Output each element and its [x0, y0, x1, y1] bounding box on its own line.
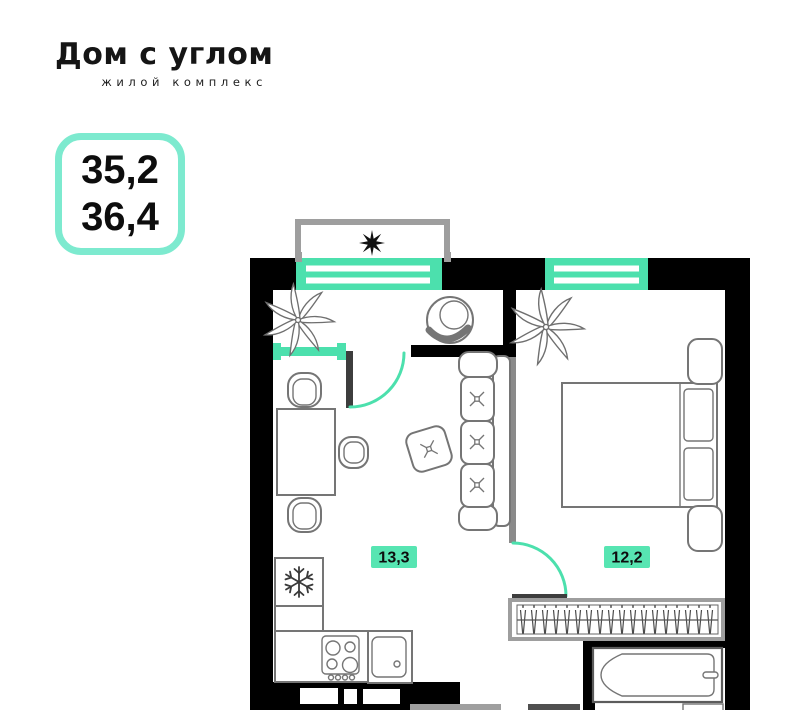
- chair-bottom: [288, 498, 321, 532]
- bed: [562, 383, 717, 507]
- balcony: [298, 222, 447, 261]
- armchair: [427, 297, 473, 343]
- window-bedroom: [545, 258, 648, 290]
- bathroom-fixture-cutoff: [683, 704, 723, 710]
- entry-wall-gray: [410, 704, 501, 710]
- page: Дом с углом жилой комплекс 35,2 36,4: [0, 0, 796, 710]
- wardrobe: [510, 600, 723, 639]
- pouf: [404, 424, 454, 474]
- burner: [326, 641, 340, 655]
- sofa: [459, 352, 510, 530]
- fridge: [275, 558, 323, 606]
- kitchen-sink: [368, 631, 412, 683]
- door-living: [346, 351, 404, 408]
- wall-vents: [300, 688, 400, 704]
- door-leaf: [346, 351, 353, 408]
- chair-right: [339, 437, 368, 468]
- room-label-bedroom: 12,2: [604, 546, 650, 568]
- room-label-kitchen-living: 13,3: [371, 546, 417, 568]
- wall-top-a: [250, 258, 296, 290]
- dining-table: [277, 409, 335, 495]
- bathtub-faucet: [703, 672, 718, 678]
- stove-knob: [350, 675, 355, 680]
- stove-knob: [329, 675, 334, 680]
- floor-plan: 13,3 12,2: [0, 0, 796, 710]
- wall-right: [725, 258, 750, 710]
- radiator: [273, 343, 346, 360]
- bathtub: [593, 648, 722, 702]
- room-area-text: 13,3: [378, 550, 409, 567]
- door-bedroom: [512, 543, 567, 601]
- door-swing-arc: [513, 543, 566, 596]
- kitchen-counter-small: [275, 606, 323, 631]
- room-area-text: 12,2: [611, 550, 642, 567]
- pillow: [684, 448, 713, 500]
- stove-knob: [336, 675, 341, 680]
- sink-drain: [394, 661, 400, 667]
- chair-top: [288, 373, 321, 407]
- nightstand-top: [688, 339, 722, 384]
- wall-left: [250, 258, 273, 710]
- stove: [322, 636, 359, 680]
- wall-top-c: [648, 258, 727, 290]
- balcony-star-icon: [359, 230, 385, 256]
- burner: [345, 642, 355, 652]
- door-swing-arc: [350, 353, 404, 407]
- entry-wall-dark: [528, 704, 580, 710]
- stove-knob: [343, 675, 348, 680]
- pillow: [684, 389, 713, 441]
- wall-top-b: [442, 258, 545, 290]
- window-living: [295, 252, 451, 290]
- nightstand-bottom: [688, 506, 722, 551]
- burner: [343, 658, 358, 673]
- burner: [327, 659, 337, 669]
- plant-icon: [511, 289, 584, 364]
